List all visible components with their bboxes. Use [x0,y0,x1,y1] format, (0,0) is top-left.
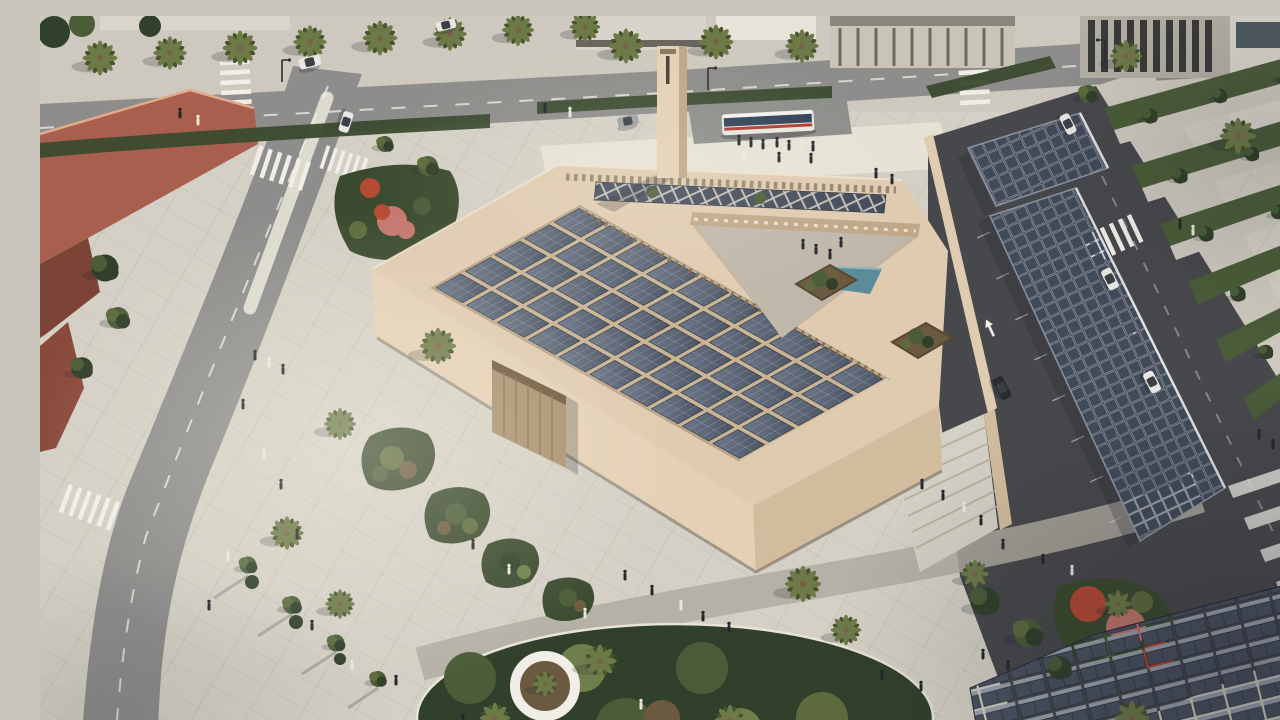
aerial-render: Aerial dusk rendering of a sand-colored … [40,16,1280,720]
scene-canvas [40,16,1280,720]
far-wall [100,16,290,30]
colonnade-building [830,16,1015,68]
tree [139,16,161,37]
